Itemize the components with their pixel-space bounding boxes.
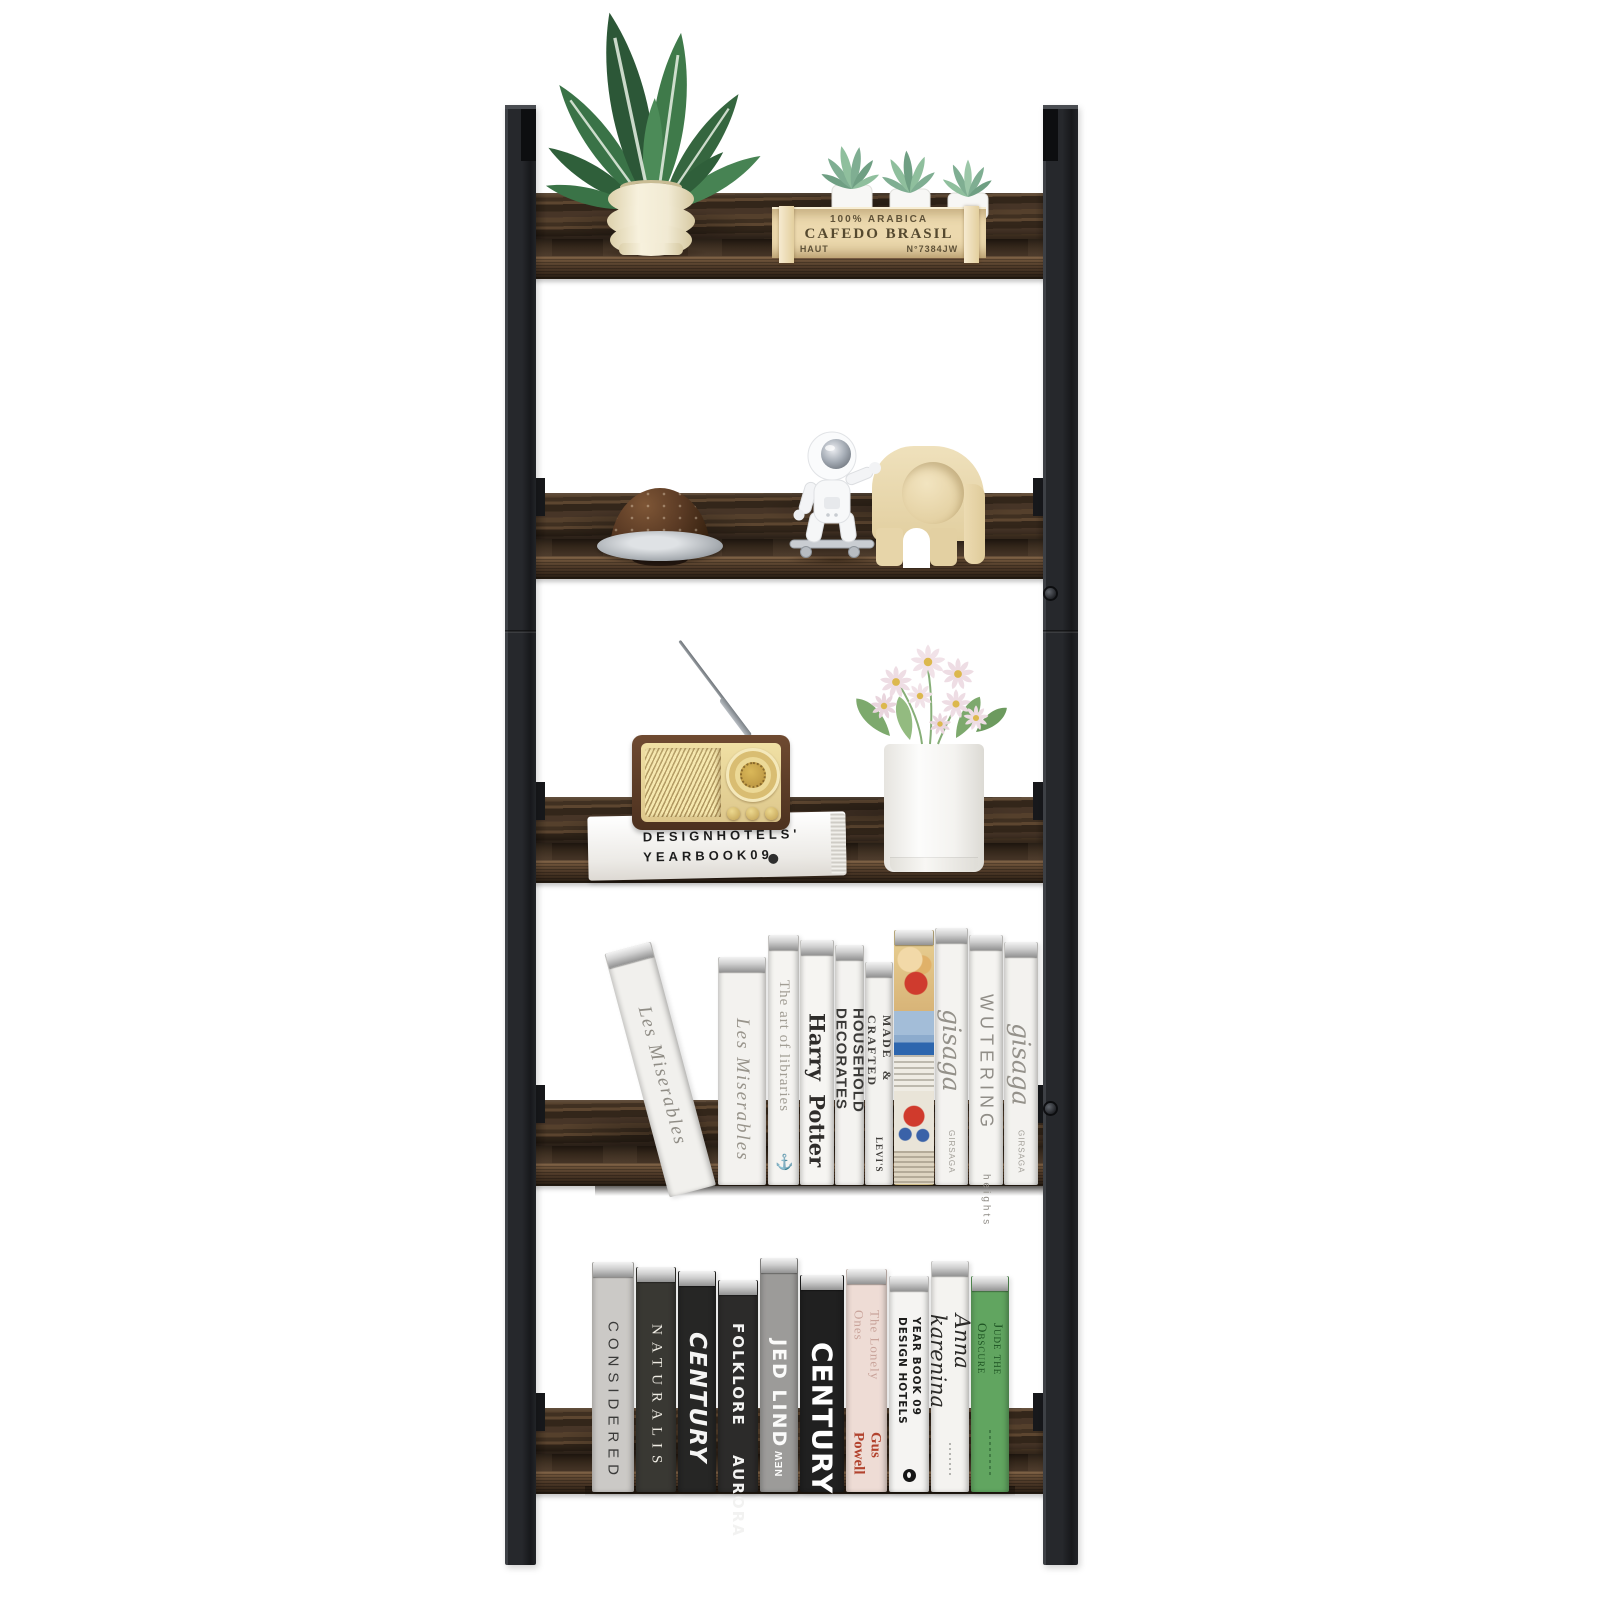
book-title: Les Miserables (633, 1004, 691, 1148)
book-title: CENTURY (684, 1332, 710, 1464)
book-footer: Gus Powell (850, 1432, 884, 1492)
book-page-edges (836, 945, 863, 960)
book-page-edges (1005, 942, 1037, 957)
vintage-radio (630, 617, 792, 832)
daisy-bouquet (852, 636, 1017, 776)
book-page-edges (972, 1276, 1008, 1291)
book-spine-the-art-of-libraries: The art of libraries⚓ (768, 935, 799, 1185)
book-title: MADE & CRAFTED (864, 1015, 894, 1137)
book-title: gisaga (1007, 1023, 1036, 1106)
elephant-trunk (964, 484, 985, 564)
book-spine-wutering-heights: WUTERINGheights (969, 935, 1003, 1185)
book-title: AURORA (729, 1455, 747, 1538)
book-title: Anna karenina (926, 1314, 974, 1443)
spine-micro-text (949, 1443, 951, 1476)
book-spine-les-miserables: Les Miserables (718, 957, 766, 1185)
book-title: FOLKLORE (729, 1323, 747, 1427)
book-spine-century-small: CENTURY (678, 1271, 716, 1492)
book-page-edges (605, 942, 653, 968)
book-title: CONSIDERED (605, 1321, 622, 1481)
book-spine-jed-lind: JED LINDNEW (760, 1258, 798, 1492)
book-spine-household-decorates: HOUSEHOLD DECORATES (835, 945, 864, 1185)
book-footer: ⚓ (775, 1153, 793, 1171)
book-footer: LEVI'S (874, 1137, 884, 1173)
book-spine-comic-collage (894, 930, 934, 1185)
book-title: gisaga (937, 1009, 966, 1092)
book-page-edges (679, 1271, 715, 1286)
book-spine-made-and-crafted: MADE & CRAFTEDLEVI'S (865, 962, 893, 1185)
comic-segment (894, 1055, 934, 1091)
book-title: Les Miserables (731, 1018, 753, 1162)
book-page-edges (890, 1276, 928, 1291)
cream-ribbed-pot (607, 177, 695, 257)
book-footer: GIRSAGA (947, 1130, 956, 1173)
radio-tuning-dial (726, 748, 780, 802)
book-spine-naturalis: NATURALIS (636, 1267, 676, 1492)
book-page-edges (801, 940, 833, 955)
spine-micro-text (989, 1430, 991, 1478)
book-spine-the-lonely-ones: The Lonely OnesGus Powell (846, 1269, 887, 1492)
book-spine-folklore-aurora: FOLKLOREAURORA (718, 1280, 758, 1492)
book-spine-jude-the-obscure: Jude the Obscure (971, 1276, 1009, 1492)
book-page-edges (936, 928, 967, 943)
book-title: Harry Potter (805, 1013, 830, 1167)
elephant-figurine (872, 446, 992, 567)
book-spine-century-large: CENTURY (800, 1275, 844, 1492)
radio-speaker-grille (645, 748, 721, 817)
comic-segment (894, 1151, 934, 1184)
radio-knob (727, 807, 740, 820)
book-title: The art of libraries (775, 980, 792, 1112)
book-title: heights (981, 1174, 992, 1227)
book-page-edges (637, 1267, 675, 1282)
book-page-edges (895, 930, 933, 945)
radio-knob (765, 807, 778, 820)
book-title: HOUSEHOLD DECORATES (833, 1008, 867, 1185)
radio-knob (746, 807, 759, 820)
book-spine-les-miserables-leaning: Les Miserables (604, 942, 716, 1198)
book-page-edges (866, 962, 892, 977)
book-spine-anna-karenina: Anna karenina (931, 1261, 969, 1492)
dome-calendar-ring (597, 531, 723, 561)
book-page-edges (761, 1258, 797, 1273)
elephant-ear (902, 462, 964, 524)
product-photo-ladder-bookshelf: 100% ARABICA CAFEDO BRASIL HAUT N°7384JW (0, 0, 1600, 1600)
comic-segment (894, 1091, 934, 1151)
book-spine-gisaga-2: gisagaGIRSAGA (1004, 942, 1038, 1185)
book-footer: GIRSAGA (1017, 1130, 1026, 1173)
book-title-columns: DESIGN HOTELSYEAR BOOK 09 (896, 1317, 922, 1425)
book-page-edges (932, 1261, 968, 1276)
book-title: Jude the Obscure (974, 1323, 1006, 1430)
book-page-edges (719, 957, 765, 972)
crate-number: N°7384JW (907, 244, 959, 254)
publisher-logo (903, 1469, 916, 1482)
book-spine-gisaga-1: gisagaGIRSAGA (935, 928, 968, 1185)
crate-haut: HAUT (800, 244, 829, 254)
book-page-edges (847, 1269, 886, 1284)
book-title: WUTERING (976, 994, 997, 1132)
book-spine-considered: CONSIDERED (592, 1262, 634, 1492)
book-page-edges (769, 935, 798, 950)
book-page-edges (801, 1275, 843, 1290)
book-spine-design-hotels-yearbook: DESIGN HOTELSYEAR BOOK 09 (889, 1276, 929, 1492)
crate-line-2: CAFEDO BRASIL (805, 226, 954, 243)
book-title: YEAR BOOK 09 (910, 1317, 922, 1425)
comic-segment (894, 1011, 934, 1055)
book-footer: NEW (774, 1450, 785, 1476)
crate-line-1: 100% ARABICA (830, 214, 928, 225)
book-page-edges (970, 935, 1002, 950)
book-title: JED LIND (768, 1339, 790, 1448)
book-page-edges (719, 1280, 757, 1295)
crate-line-3: HAUT N°7384JW (800, 244, 958, 254)
book-title: NATURALIS (648, 1324, 665, 1470)
book-title: The Lonely Ones (851, 1310, 883, 1398)
comic-segment (894, 945, 934, 1011)
coffee-crate: 100% ARABICA CAFEDO BRASIL HAUT N°7384JW (772, 207, 986, 258)
book-title: CENTURY (806, 1342, 839, 1494)
book-title: DESIGN HOTELS (896, 1317, 908, 1425)
book-page-edges (593, 1262, 633, 1277)
astronaut-skateboard-figurine (782, 418, 882, 566)
book-spine-harry-potter: Harry Potter (800, 940, 834, 1185)
